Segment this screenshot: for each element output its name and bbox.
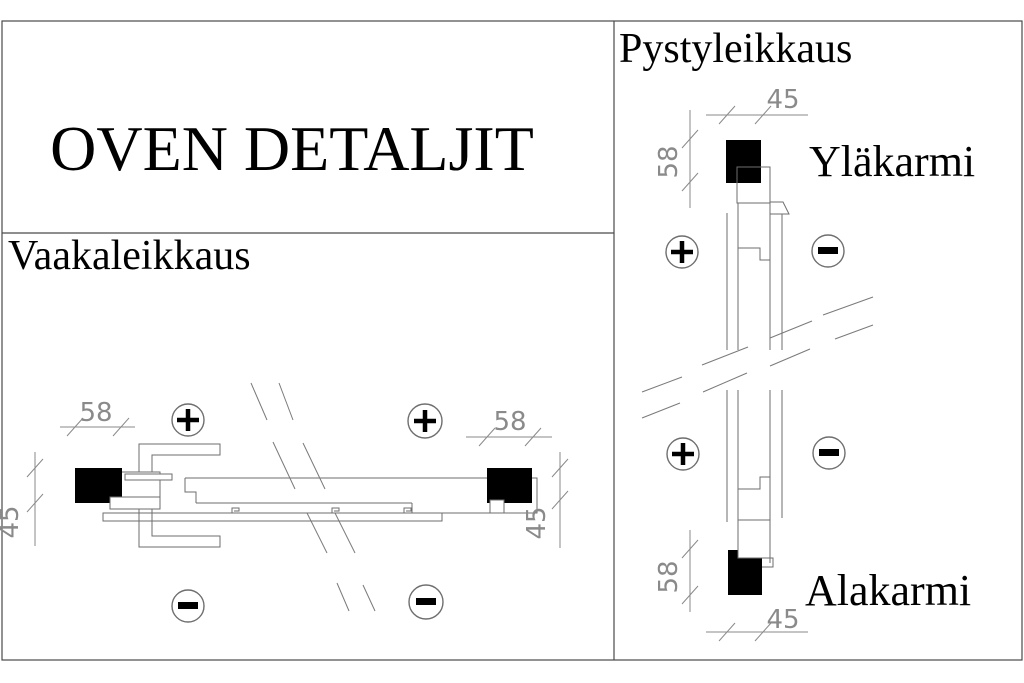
section-title-vaakaleikkaus: Vaakaleikkaus (8, 233, 251, 279)
seal-clip (404, 508, 411, 513)
page-title: OVEN DETALJIT (50, 113, 534, 184)
leaf-bottom-step (738, 477, 770, 489)
dimension-bottom-width: 45 (706, 605, 808, 641)
plus-marker (666, 236, 698, 268)
leaf-right-step (412, 503, 537, 513)
bottom-frame-label: Alakarmi (805, 566, 971, 615)
drawing-sheet: OVEN DETALJIT Vaakaleikkaus (0, 0, 1024, 683)
left-top-plate (125, 474, 172, 480)
dim-text: 45 (0, 505, 25, 538)
vertical-section: Pystyleikkaus Yläkarmi Alakarmi (619, 26, 975, 641)
break-line (251, 383, 375, 611)
dim-text: 58 (79, 398, 112, 428)
left-frame-notch (110, 497, 160, 509)
vertical-section-geometry (642, 140, 873, 595)
minus-marker (813, 437, 845, 469)
minus-marker (409, 585, 443, 619)
dim-text: 58 (654, 145, 684, 178)
horizontal-section-geometry (75, 383, 537, 611)
drip-flag (770, 202, 789, 214)
break-line (642, 297, 873, 418)
cad-drawing: OVEN DETALJIT Vaakaleikkaus (0, 0, 1024, 683)
minus-marker (812, 235, 844, 267)
top-frame-label: Yläkarmi (809, 137, 975, 186)
minus-marker (172, 590, 204, 622)
bottom-frame-outline (738, 520, 770, 558)
plus-marker (667, 438, 699, 470)
dim-text: 45 (766, 605, 799, 635)
seal-clip (332, 508, 339, 513)
leaf-left-step (185, 478, 196, 503)
leaf-top-step (738, 248, 770, 260)
dim-text: 45 (522, 506, 552, 539)
frame-section-right (487, 468, 532, 503)
section-title-pystyleikkaus: Pystyleikkaus (619, 26, 852, 72)
dim-text: 58 (654, 560, 684, 593)
right-frame-notch (490, 500, 504, 513)
dimension-top-width: 45 (706, 85, 808, 124)
dimension-bottom-height: 58 (654, 530, 698, 612)
dimension-left-depth: 45 (0, 452, 43, 546)
dim-text: 58 (493, 407, 526, 437)
dimension-left-width: 58 (60, 398, 135, 436)
dimension-right-width: 58 (466, 407, 552, 446)
dim-text: 45 (766, 85, 799, 115)
horizontal-section: Vaakaleikkaus (0, 233, 568, 622)
weather-strip (103, 513, 442, 521)
plus-marker (408, 404, 442, 438)
seal-clip (232, 508, 239, 513)
dimension-top-height: 58 (654, 110, 698, 208)
frame-section-top (726, 140, 761, 183)
plus-marker (172, 404, 204, 436)
